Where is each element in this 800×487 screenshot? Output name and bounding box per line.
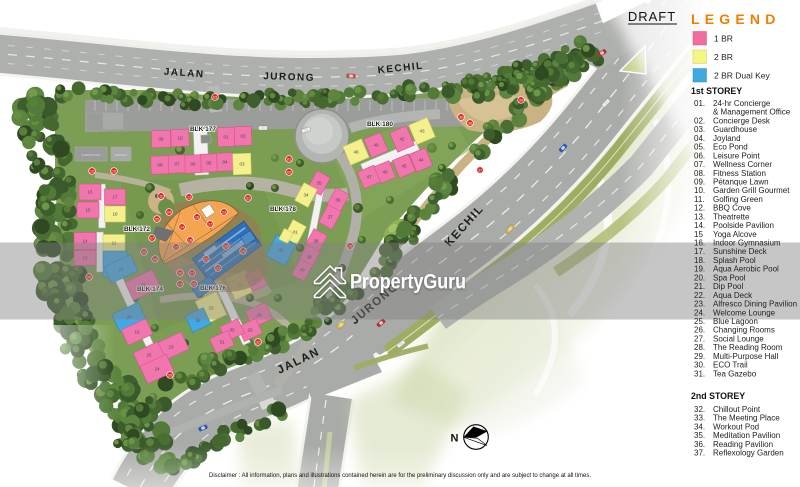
svg-text:Welcome Lounge: Welcome Lounge	[713, 308, 776, 317]
svg-text:30.: 30.	[694, 361, 705, 370]
svg-text:N: N	[451, 433, 459, 445]
svg-text:23: 23	[168, 345, 174, 350]
svg-text:35.: 35.	[694, 431, 705, 440]
svg-text:Changing Rooms: Changing Rooms	[713, 326, 775, 335]
svg-text:02: 02	[287, 170, 291, 174]
svg-text:Pétanque Lawn: Pétanque Lawn	[713, 178, 769, 187]
svg-text:17: 17	[208, 222, 212, 226]
svg-text:Disclaimer : All information,: Disclaimer : All information, plans and …	[209, 472, 591, 479]
svg-text:31: 31	[246, 196, 250, 200]
svg-text:Golfing Green: Golfing Green	[713, 195, 763, 204]
svg-text:20.: 20.	[694, 273, 705, 282]
svg-text:Reading Pavilion: Reading Pavilion	[713, 440, 773, 449]
svg-text:02.: 02.	[694, 116, 705, 125]
svg-text:Indoor Gymnasium: Indoor Gymnasium	[713, 239, 781, 248]
svg-text:04: 04	[167, 210, 171, 214]
svg-text:47: 47	[366, 175, 372, 180]
svg-text:13.: 13.	[694, 212, 705, 221]
svg-text:Joyland: Joyland	[713, 134, 741, 143]
svg-text:1 BR: 1 BR	[714, 34, 733, 44]
svg-text:Yoga Alcove: Yoga Alcove	[713, 230, 757, 239]
svg-text:10.: 10.	[694, 186, 705, 195]
svg-text:JURONG: JURONG	[263, 71, 315, 84]
svg-text:BLK 180: BLK 180	[367, 121, 393, 128]
svg-text:BLK 172: BLK 172	[124, 226, 150, 233]
svg-text:17: 17	[112, 195, 118, 200]
svg-text:DRAFT: DRAFT	[628, 9, 676, 24]
svg-text:Leisure Point: Leisure Point	[713, 151, 760, 160]
svg-text:30: 30	[459, 115, 463, 119]
svg-text:Concierge Desk: Concierge Desk	[713, 116, 771, 125]
svg-text:08.: 08.	[694, 169, 705, 178]
svg-text:Dip Pool: Dip Pool	[713, 282, 743, 291]
svg-text:14: 14	[180, 225, 184, 229]
svg-text:33.: 33.	[694, 414, 705, 423]
svg-text:18: 18	[188, 238, 192, 242]
svg-text:30: 30	[519, 98, 523, 102]
svg-text:03.: 03.	[694, 125, 705, 134]
svg-text:01: 01	[287, 157, 291, 161]
svg-text:23.: 23.	[694, 300, 705, 309]
svg-text:27.: 27.	[694, 334, 705, 343]
svg-text:Splash Pool: Splash Pool	[713, 256, 756, 265]
svg-text:Alfresco Dining Pavilion: Alfresco Dining Pavilion	[713, 300, 797, 309]
svg-text:12.: 12.	[694, 204, 705, 213]
svg-text:35: 35	[316, 181, 322, 186]
svg-text:Aqua Deck: Aqua Deck	[713, 291, 753, 300]
svg-text:36: 36	[468, 121, 472, 125]
svg-text:1st STOREY: 1st STOREY	[691, 86, 742, 96]
svg-text:Theatrette: Theatrette	[713, 212, 750, 221]
svg-text:2 BR: 2 BR	[714, 52, 733, 62]
svg-text:08: 08	[157, 163, 163, 168]
svg-text:The Meeting Place: The Meeting Place	[713, 414, 780, 423]
svg-text:02: 02	[240, 134, 246, 139]
svg-text:24-hr Concierge: 24-hr Concierge	[713, 99, 771, 108]
svg-text:23: 23	[222, 210, 226, 214]
svg-text:Blue Lagoon: Blue Lagoon	[713, 317, 758, 326]
svg-text:10: 10	[177, 136, 183, 141]
svg-text:2nd STOREY: 2nd STOREY	[691, 391, 745, 401]
svg-text:26.: 26.	[694, 326, 705, 335]
svg-text:Aqua Aerobic Pool: Aqua Aerobic Pool	[713, 265, 779, 274]
svg-text:16.: 16.	[694, 239, 705, 248]
svg-text:Garden Grill Gourmet: Garden Grill Gourmet	[713, 186, 790, 195]
svg-text:49: 49	[373, 143, 379, 148]
svg-text:30: 30	[229, 328, 235, 333]
svg-text:The Reading Room: The Reading Room	[713, 343, 783, 352]
svg-text:15: 15	[694, 230, 703, 239]
svg-text:04: 04	[222, 160, 228, 165]
svg-text:11: 11	[159, 194, 163, 198]
svg-text:Wellness Corner: Wellness Corner	[713, 160, 772, 169]
svg-text:05.: 05.	[694, 143, 705, 152]
svg-text:48: 48	[353, 150, 359, 155]
svg-text:Reflexology Garden: Reflexology Garden	[713, 449, 784, 458]
svg-text:11.: 11.	[694, 195, 705, 204]
svg-text:44: 44	[418, 158, 424, 163]
svg-text:ECO Trail: ECO Trail	[713, 361, 748, 370]
svg-text:Social Lounge: Social Lounge	[713, 334, 764, 343]
svg-text:45: 45	[401, 164, 407, 169]
svg-text:09: 09	[158, 137, 164, 142]
svg-text:Chillout Point: Chillout Point	[713, 405, 761, 414]
svg-text:09.: 09.	[694, 178, 705, 187]
svg-text:Sunshine Deck: Sunshine Deck	[713, 247, 768, 256]
svg-text:17.: 17.	[694, 247, 705, 256]
svg-text:Multi-Purpose Hall: Multi-Purpose Hall	[713, 352, 779, 361]
svg-text:Eco Pond: Eco Pond	[713, 143, 748, 152]
svg-text:Fitness Station: Fitness Station	[713, 169, 766, 178]
svg-text:01: 01	[223, 135, 229, 140]
svg-text:06: 06	[190, 162, 196, 167]
svg-text:46: 46	[382, 170, 388, 175]
svg-text:37.: 37.	[694, 449, 705, 458]
svg-text:12: 12	[90, 169, 94, 173]
svg-text:GENSET: GENSET	[115, 153, 128, 157]
svg-text:29.: 29.	[694, 352, 705, 361]
svg-text:01.: 01.	[694, 99, 705, 108]
svg-text:25: 25	[146, 353, 152, 358]
svg-text:24.: 24.	[694, 308, 705, 317]
svg-text:31: 31	[219, 340, 225, 345]
svg-text:32.: 32.	[694, 405, 705, 414]
svg-text:04.: 04.	[694, 134, 705, 143]
svg-text:BLK 178: BLK 178	[270, 206, 296, 213]
svg-text:42: 42	[399, 137, 405, 142]
svg-text:Guardhouse: Guardhouse	[713, 125, 758, 134]
svg-text:34.: 34.	[694, 422, 705, 431]
svg-text:18.: 18.	[694, 256, 705, 265]
svg-text:Spa Pool: Spa Pool	[713, 273, 746, 282]
svg-text:03: 03	[213, 95, 217, 99]
svg-text:25.: 25.	[694, 317, 705, 326]
svg-text:16: 16	[195, 215, 199, 219]
svg-text:07: 07	[174, 162, 180, 167]
svg-text:16: 16	[87, 190, 93, 195]
svg-text:37: 37	[478, 168, 482, 172]
svg-text:SUBSTATION: SUBSTATION	[82, 153, 101, 157]
svg-text:07.: 07.	[694, 160, 705, 169]
svg-text:28.: 28.	[694, 343, 705, 352]
svg-text:37: 37	[327, 215, 333, 220]
svg-text:06.: 06.	[694, 151, 705, 160]
svg-text:13: 13	[187, 195, 191, 199]
svg-text:Workout Pod: Workout Pod	[713, 422, 759, 431]
svg-text:Tea Gazebo: Tea Gazebo	[713, 369, 757, 378]
svg-text:Poolside Pavilion: Poolside Pavilion	[713, 221, 774, 230]
svg-text:03: 03	[239, 162, 245, 167]
svg-text:22.: 22.	[694, 291, 705, 300]
svg-text:Meditation Pavilion: Meditation Pavilion	[713, 431, 780, 440]
svg-text:19: 19	[134, 330, 140, 335]
svg-text:31.: 31.	[694, 369, 705, 378]
svg-text:36: 36	[335, 198, 341, 203]
svg-text:2 BR Dual Key: 2 BR Dual Key	[714, 71, 770, 81]
svg-text:05: 05	[206, 161, 212, 166]
svg-text:14.: 14.	[694, 221, 705, 230]
svg-text:32: 32	[256, 340, 260, 344]
svg-text:21.: 21.	[694, 282, 705, 291]
svg-text:PropertyGuru: PropertyGuru	[350, 270, 466, 294]
svg-text:10: 10	[112, 169, 116, 173]
svg-text:43: 43	[419, 129, 425, 134]
svg-text:LEGEND: LEGEND	[691, 11, 781, 27]
svg-text:41: 41	[292, 230, 298, 235]
svg-text:18: 18	[112, 212, 118, 217]
svg-text:& Management Office: & Management Office	[713, 108, 791, 117]
svg-text:29: 29	[247, 328, 253, 333]
svg-text:05: 05	[155, 217, 159, 221]
svg-text:34: 34	[303, 193, 309, 198]
svg-text:BBQ Cove: BBQ Cove	[713, 204, 751, 213]
svg-text:36.: 36.	[694, 440, 705, 449]
svg-text:15: 15	[85, 208, 91, 213]
svg-text:29: 29	[168, 373, 172, 377]
svg-text:07: 07	[150, 236, 154, 240]
svg-text:BLK 177: BLK 177	[190, 126, 216, 133]
svg-text:24: 24	[154, 367, 160, 372]
svg-text:19.: 19.	[694, 265, 705, 274]
